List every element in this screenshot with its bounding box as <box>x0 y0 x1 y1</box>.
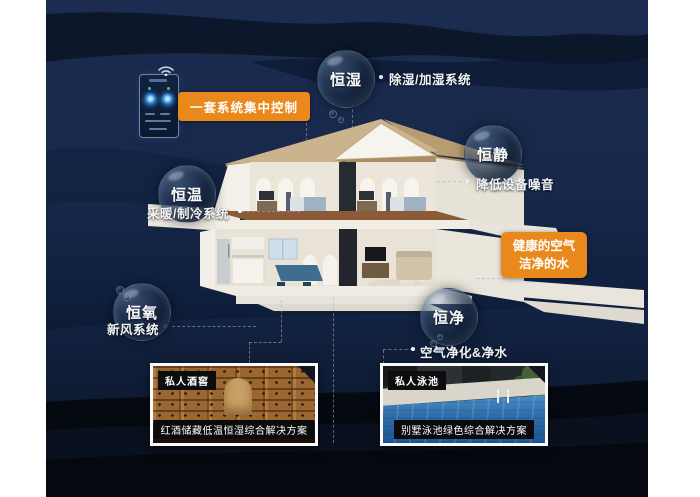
connector-noise <box>437 181 467 182</box>
corner-fold-icon <box>528 366 545 383</box>
label-air-water-purification: 空气净化&净水 <box>420 342 508 361</box>
label-dehumidify-system: 除湿/加湿系统 <box>389 69 471 88</box>
connector-winecellar-a <box>281 300 282 342</box>
mini-bubble <box>124 295 130 301</box>
leader-dot <box>238 209 242 213</box>
corner-fold-icon <box>298 366 315 383</box>
photo-caption-pool: 别墅泳池绿色综合解决方案 <box>394 420 534 439</box>
healthy-air-callout: 健康的空气 洁净的水 <box>501 232 587 278</box>
leader-dot <box>465 179 469 183</box>
healthy-air-line1: 健康的空气 <box>503 237 585 255</box>
mini-bubble <box>338 117 344 123</box>
connector-purify-down <box>383 350 384 364</box>
photo-private-pool: 私人泳池 别墅泳池绿色综合解决方案 <box>380 363 548 446</box>
mini-bubble <box>437 334 443 340</box>
photo-tag-wine-cellar: 私人酒窖 <box>158 371 216 390</box>
connector-purify <box>383 349 413 350</box>
central-control-callout: 一套系统集中控制 <box>178 92 310 121</box>
photo-tag-pool: 私人泳池 <box>388 371 446 390</box>
photo-caption-wine: 红酒储藏低温恒湿综合解决方案 <box>154 420 315 439</box>
connector-winecellar-b <box>249 342 281 343</box>
connector-heating <box>242 211 300 212</box>
label-fresh-air-system: 新风系统 <box>107 319 159 338</box>
photo-wine-cellar: 私人酒窖 红酒储藏低温恒湿综合解决方案 <box>150 363 318 446</box>
smart-home-poster: 一套系统集中控制 恒湿 恒静 恒温 恒氧 恒净 除湿/加湿系统 降低设备噪音 采… <box>0 0 700 497</box>
mini-bubble <box>329 110 337 118</box>
clean-water-line2: 洁净的水 <box>503 255 585 273</box>
bubble-constant-clean: 恒净 <box>420 288 478 346</box>
wifi-icon <box>156 60 176 76</box>
bubble-constant-humidity: 恒湿 <box>317 50 375 108</box>
central-control-label: 一套系统集中控制 <box>190 101 298 115</box>
connector-house-photos <box>333 298 334 443</box>
leader-dot <box>411 347 415 351</box>
smart-controller-icon <box>139 74 179 138</box>
connector-winecellar-c <box>249 342 250 363</box>
leader-dot <box>379 75 383 79</box>
connector-airbox-b <box>477 278 505 279</box>
mini-bubble <box>116 286 124 294</box>
label-heating-cooling-system: 采暖/制冷系统 <box>147 203 229 222</box>
connector-freshair <box>172 326 256 327</box>
label-noise-reduction: 降低设备噪音 <box>476 174 554 193</box>
connector-humidity-roof <box>352 104 353 134</box>
